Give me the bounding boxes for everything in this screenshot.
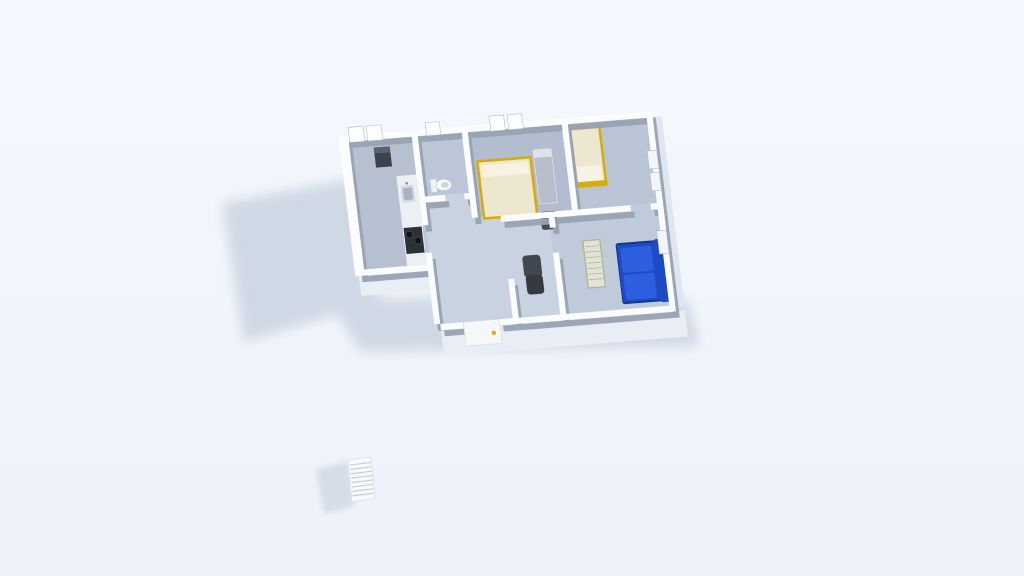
refrigerator [374, 146, 392, 167]
kitchen-window-1 [348, 126, 365, 142]
burner-2 [414, 237, 422, 245]
armchair-seat [525, 274, 544, 294]
single-bed-pillow [577, 165, 603, 183]
burner-1 [405, 231, 413, 239]
kitchen-window-2 [366, 125, 383, 141]
armchair-back [522, 254, 543, 277]
bedroom2-window-1 [647, 150, 659, 169]
double-bed [477, 157, 537, 218]
bedroom1-window-2 [507, 114, 523, 130]
bedroom2-window-2 [650, 172, 662, 191]
render-viewport [0, 0, 1024, 576]
wardrobe-top [533, 149, 552, 158]
front-door [463, 319, 502, 346]
sink-basin [403, 187, 413, 200]
sofa-cushion-2 [623, 273, 657, 300]
front-door-leaf [463, 319, 502, 346]
floorplan-render [0, 0, 1024, 576]
refrigerator-top [374, 146, 391, 153]
bedroom1-window-1 [489, 115, 505, 131]
bathroom-window [425, 122, 441, 136]
sofa-cushion-1 [620, 246, 654, 273]
